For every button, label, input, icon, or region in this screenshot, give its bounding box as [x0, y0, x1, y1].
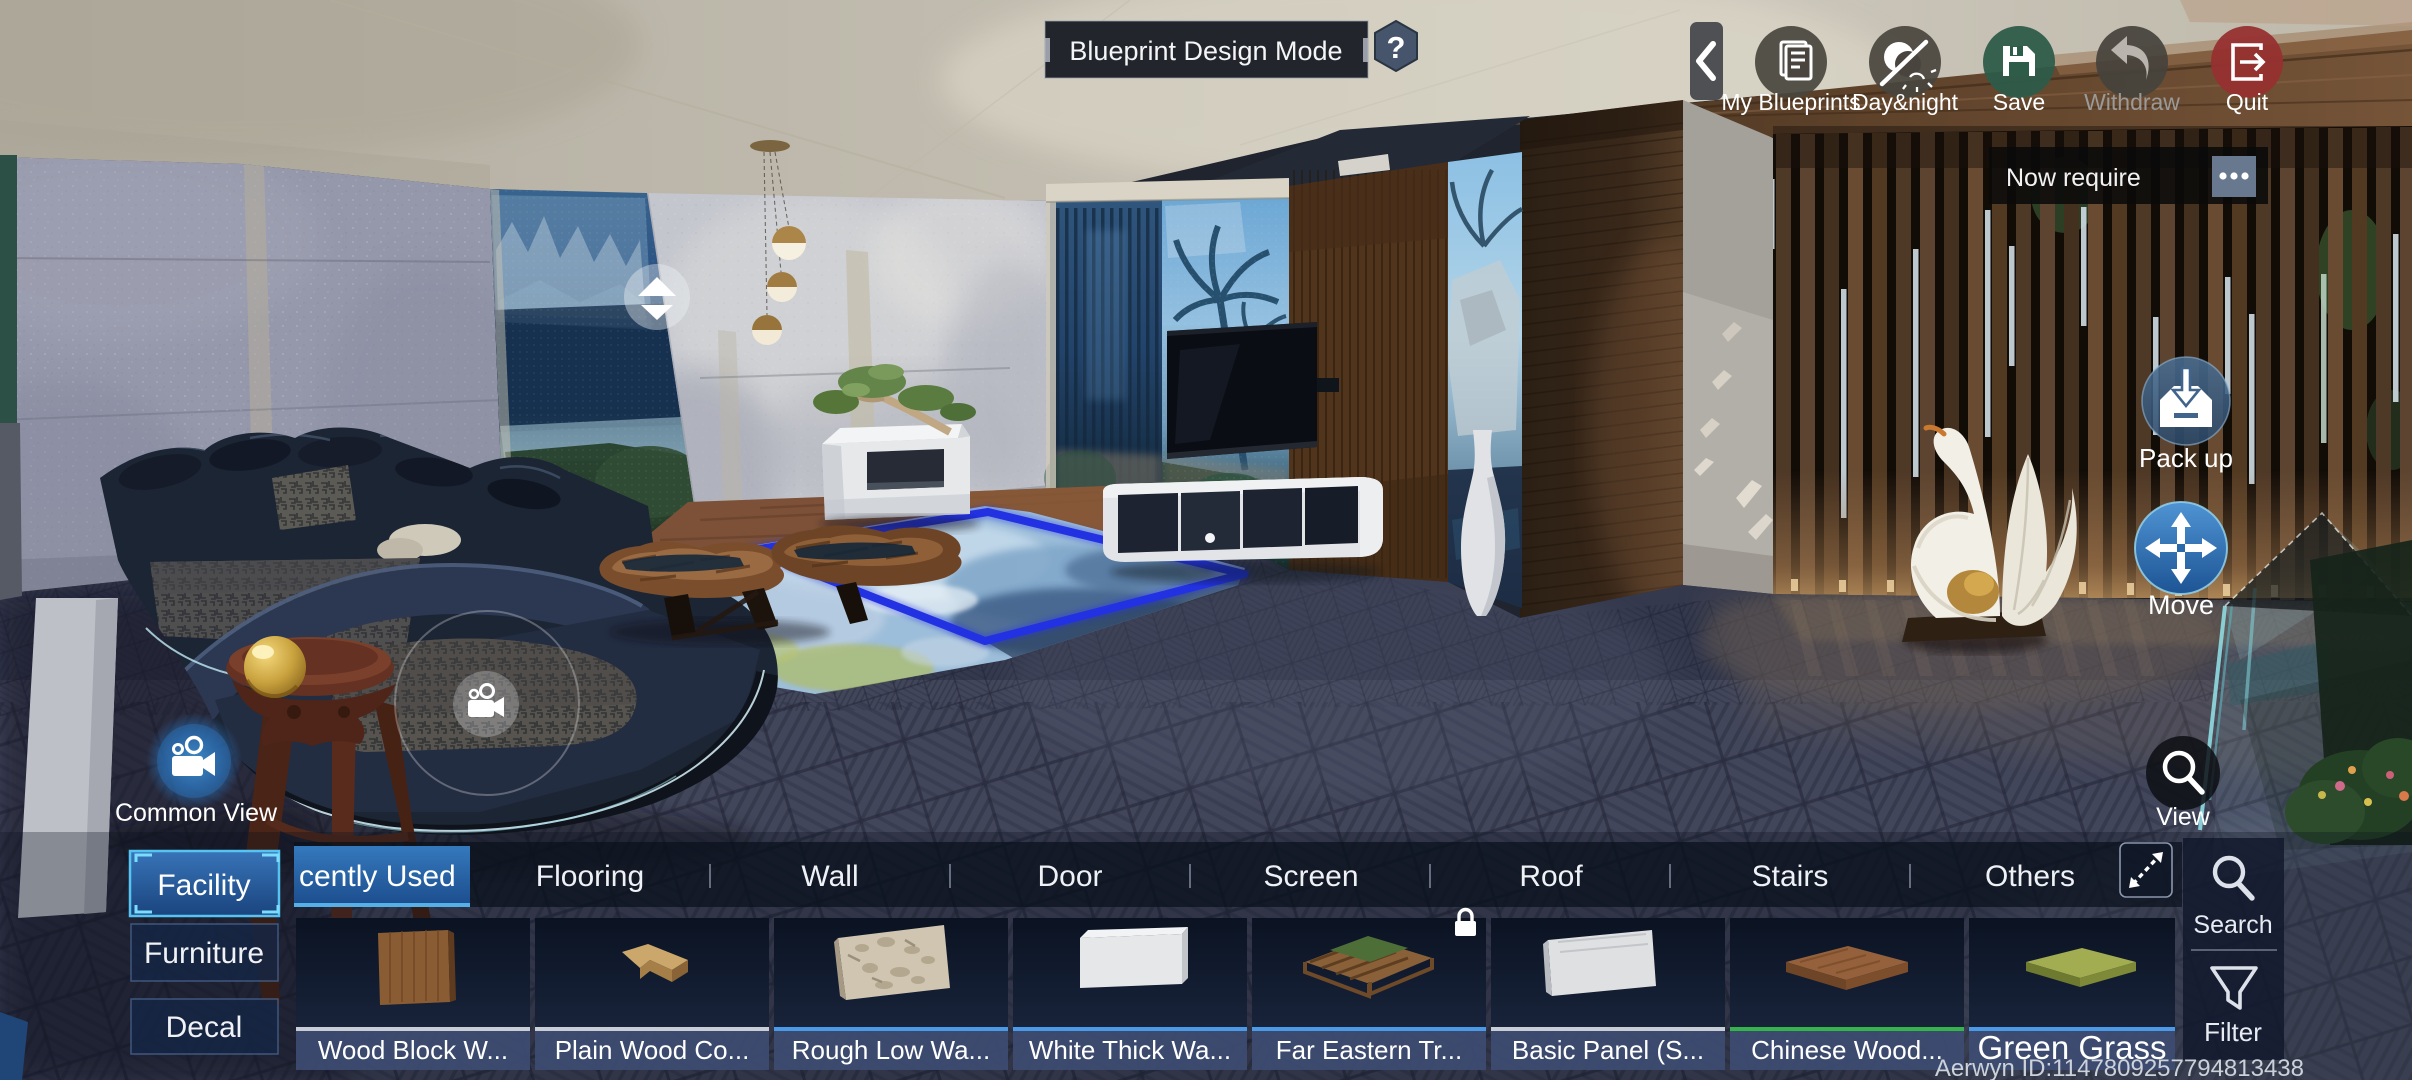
svg-text:Save: Save — [1993, 89, 2045, 115]
svg-text:Far Eastern Tr...: Far Eastern Tr... — [1276, 1035, 1462, 1065]
svg-text:Door: Door — [1037, 860, 1102, 893]
svg-text:View: View — [2156, 803, 2211, 831]
svg-text:Day&night: Day&night — [1852, 89, 1959, 115]
svg-text:Flooring: Flooring — [536, 860, 644, 893]
svg-text:Screen: Screen — [1263, 860, 1358, 893]
svg-text:Rough Low Wa...: Rough Low Wa... — [792, 1035, 990, 1065]
svg-text:Decal: Decal — [166, 1011, 243, 1044]
svg-text:Stairs: Stairs — [1752, 860, 1829, 893]
svg-text:Now require: Now require — [2006, 164, 2141, 192]
svg-text:Pack up: Pack up — [2139, 443, 2233, 473]
svg-text:Roof: Roof — [1519, 860, 1583, 893]
svg-text:Others: Others — [1985, 860, 2075, 893]
svg-text:White Thick Wa...: White Thick Wa... — [1029, 1035, 1231, 1065]
svg-text:Chinese Wood...: Chinese Wood... — [1751, 1035, 1943, 1065]
svg-text:Filter: Filter — [2204, 1017, 2262, 1047]
svg-text:Basic Panel (S...: Basic Panel (S... — [1512, 1035, 1704, 1065]
svg-text:Quit: Quit — [2226, 89, 2269, 115]
svg-text:Wood Block W...: Wood Block W... — [318, 1035, 508, 1065]
svg-text:Furniture: Furniture — [144, 937, 264, 970]
svg-text:Wall: Wall — [801, 860, 858, 893]
svg-text:Plain Wood Co...: Plain Wood Co... — [555, 1035, 750, 1065]
svg-text:Common View: Common View — [115, 799, 278, 827]
svg-text:Facility: Facility — [157, 869, 250, 902]
svg-text:Search: Search — [2193, 911, 2272, 939]
svg-text:?: ? — [1387, 30, 1406, 65]
svg-text:Blueprint Design Mode: Blueprint Design Mode — [1069, 36, 1342, 66]
svg-text:Aerwyn ID:1147809257794813438: Aerwyn ID:1147809257794813438 — [1935, 1055, 2304, 1080]
svg-text:cently Used: cently Used — [299, 860, 456, 893]
svg-text:My Blueprints: My Blueprints — [1721, 89, 1860, 115]
svg-text:Move: Move — [2148, 590, 2214, 620]
svg-text:Withdraw: Withdraw — [2084, 89, 2180, 115]
